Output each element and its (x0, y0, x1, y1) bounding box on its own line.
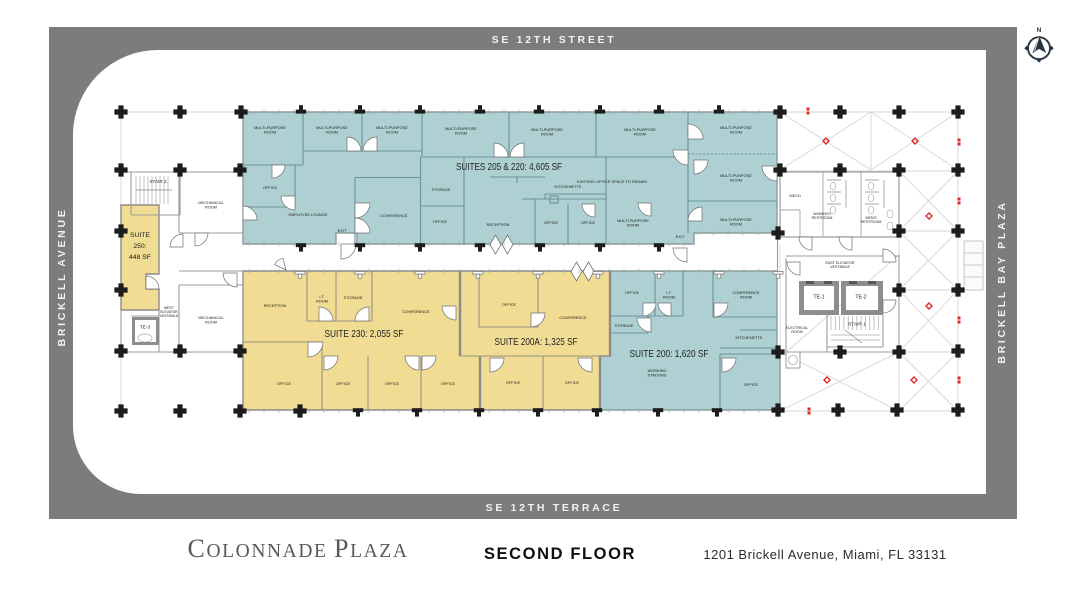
svg-text:SUITE 200A: 1,325 SF: SUITE 200A: 1,325 SF (495, 336, 578, 348)
svg-text:ROOM: ROOM (730, 221, 742, 226)
svg-text:ROOM: ROOM (386, 129, 398, 134)
svg-text:TE-1: TE-1 (813, 294, 824, 300)
svg-text:ROOM: ROOM (791, 330, 802, 334)
svg-text:OFFICE: OFFICE (544, 220, 559, 225)
svg-text:RESTROOM: RESTROOM (861, 220, 882, 224)
svg-text:CONFERENCE: CONFERENCE (380, 213, 408, 218)
svg-text:N: N (1037, 27, 1042, 34)
svg-text:RECEPTION: RECEPTION (264, 303, 287, 308)
svg-text:ROOM: ROOM (730, 177, 742, 182)
svg-text:ROOM: ROOM (326, 129, 338, 134)
svg-text:ROOM: ROOM (663, 294, 675, 299)
svg-text:EXIT: EXIT (676, 234, 685, 239)
svg-text:RECEPTION: RECEPTION (487, 222, 510, 227)
svg-text:ROOM: ROOM (205, 204, 217, 209)
svg-text:CONFERENCE: CONFERENCE (402, 309, 430, 314)
svg-text:BRICKELL AVENUE: BRICKELL AVENUE (56, 208, 68, 347)
svg-text:ROOM: ROOM (627, 222, 639, 227)
svg-text:ROOM: ROOM (634, 131, 646, 136)
svg-text:250:: 250: (133, 243, 146, 250)
svg-text:SUITE: SUITE (130, 232, 150, 239)
svg-text:1201 Brickell Avenue, Miami, F: 1201 Brickell Avenue, Miami, FL 33131 (703, 547, 946, 562)
svg-text:STORAGE: STORAGE (432, 187, 451, 192)
svg-text:OFFICE: OFFICE (744, 382, 759, 387)
svg-text:OFFICE: OFFICE (441, 381, 456, 386)
svg-text:SE 12TH TERRACE: SE 12TH TERRACE (486, 502, 623, 514)
svg-text:SUITE 200: 1,620 SF: SUITE 200: 1,620 SF (630, 348, 709, 360)
svg-text:OFFICE: OFFICE (565, 380, 580, 385)
svg-text:BRICKELL BAY PLAZA: BRICKELL BAY PLAZA (996, 200, 1008, 363)
svg-text:KITCHENETTE: KITCHENETTE (554, 184, 581, 189)
svg-text:SECOND FLOOR: SECOND FLOOR (484, 545, 636, 563)
svg-text:OFFICE: OFFICE (385, 381, 400, 386)
svg-text:ROOM: ROOM (205, 319, 217, 324)
svg-text:OFFICE: OFFICE (625, 290, 640, 295)
svg-text:OFFICE: OFFICE (502, 302, 517, 307)
svg-text:STAIR 1: STAIR 1 (848, 321, 866, 327)
svg-text:STORAGE: STORAGE (344, 295, 363, 300)
svg-text:ROOM: ROOM (730, 129, 742, 134)
svg-text:SUITES 205 & 220: 4,605 SF: SUITES 205 & 220: 4,605 SF (456, 161, 562, 173)
svg-text:MECH: MECH (789, 194, 800, 198)
svg-text:STAIR 2: STAIR 2 (149, 179, 166, 184)
svg-text:EXISTING OFFICE SPACE TO REMAI: EXISTING OFFICE SPACE TO REMAIN (577, 179, 647, 184)
svg-text:STATIONS: STATIONS (648, 372, 667, 377)
svg-text:ROOM: ROOM (740, 294, 752, 299)
svg-text:EXIT: EXIT (338, 228, 347, 233)
svg-text:448 SF: 448 SF (129, 254, 151, 261)
svg-text:ROOM: ROOM (264, 129, 276, 134)
svg-text:EMPLOYEE LOUNGE: EMPLOYEE LOUNGE (289, 212, 328, 217)
svg-text:OFFICE: OFFICE (263, 185, 278, 190)
svg-text:KITCHENETTE: KITCHENETTE (735, 335, 762, 340)
svg-text:ROOM: ROOM (316, 298, 328, 303)
svg-text:STORAGE: STORAGE (615, 323, 634, 328)
svg-text:ROOM: ROOM (455, 130, 467, 135)
svg-text:SE 12TH STREET: SE 12TH STREET (492, 34, 617, 46)
svg-text:TE-2: TE-2 (855, 294, 866, 300)
svg-text:ROOM: ROOM (541, 131, 553, 136)
svg-text:CONFERENCE: CONFERENCE (559, 315, 587, 320)
svg-text:OFFICE: OFFICE (506, 380, 521, 385)
svg-text:OFFICE: OFFICE (336, 381, 351, 386)
svg-text:VESTIBULE: VESTIBULE (160, 314, 179, 318)
svg-text:OFFICE: OFFICE (581, 220, 596, 225)
svg-text:RESTROOM: RESTROOM (812, 216, 833, 220)
svg-text:TE-3: TE-3 (140, 324, 151, 330)
svg-text:VESTIBULE: VESTIBULE (830, 265, 850, 269)
svg-text:OFFICE: OFFICE (277, 381, 292, 386)
svg-text:OFFICE: OFFICE (433, 219, 448, 224)
svg-text:SUITE 230: 2,055 SF: SUITE 230: 2,055 SF (325, 328, 404, 340)
